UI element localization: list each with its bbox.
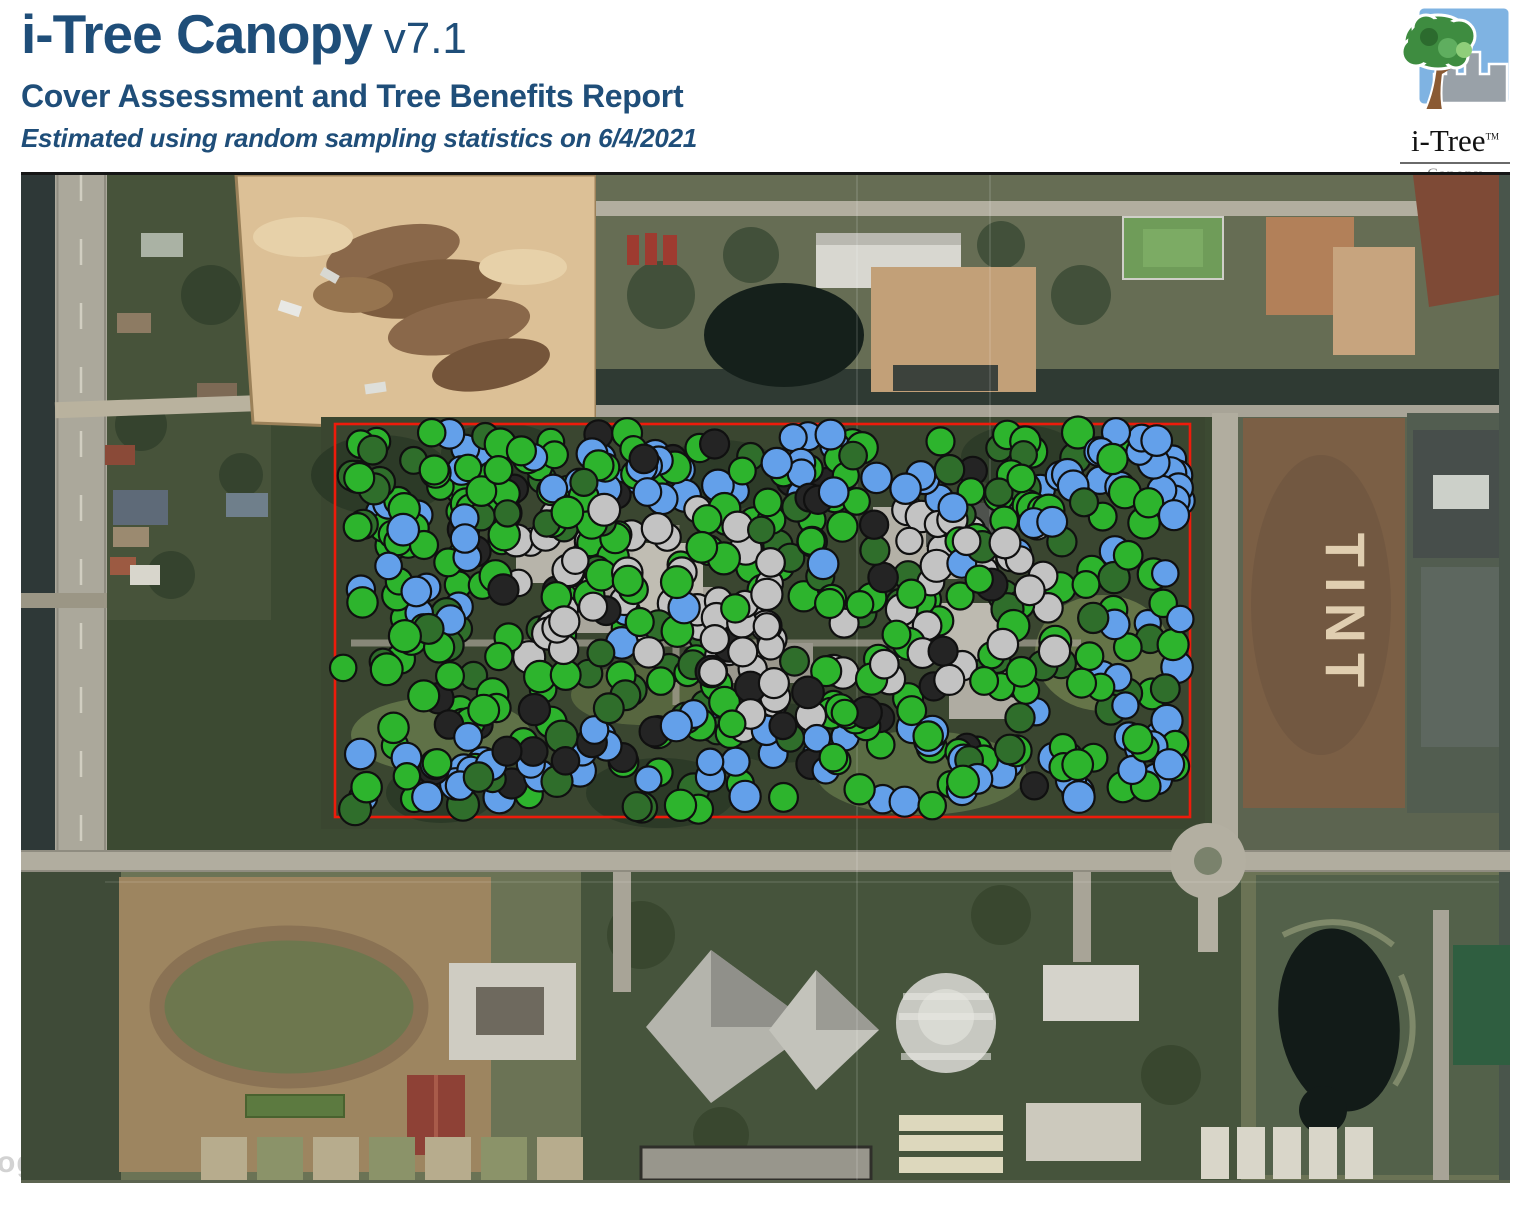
sample-point <box>860 536 889 565</box>
sample-point <box>995 735 1025 765</box>
sample-point <box>436 662 464 690</box>
sample-point <box>815 589 844 618</box>
sample-point <box>1114 541 1143 570</box>
sample-point <box>769 783 798 812</box>
sample-point <box>808 549 839 580</box>
sample-point <box>914 721 943 750</box>
sample-point <box>966 566 993 593</box>
sample-point <box>647 667 674 694</box>
sample-point <box>756 548 785 577</box>
page-title: i-Tree Canopyv7.1 <box>21 6 697 64</box>
sample-point <box>770 712 797 739</box>
sample-point <box>947 766 979 798</box>
sample-point <box>635 766 661 792</box>
sample-point <box>1007 657 1037 687</box>
sample-point <box>358 436 387 465</box>
sample-point <box>839 442 867 470</box>
sample-point <box>883 621 911 649</box>
sample-point <box>870 650 899 679</box>
sample-point <box>868 563 897 592</box>
sample-point <box>613 566 643 596</box>
sample-point <box>507 436 536 465</box>
sample-point <box>990 528 1021 559</box>
sample-point <box>970 667 998 695</box>
sample-point <box>759 668 789 698</box>
sample-point <box>701 625 729 653</box>
sample-point <box>754 613 780 639</box>
sample-point <box>762 448 792 478</box>
sample-point <box>552 497 584 529</box>
sample-point <box>1152 560 1178 586</box>
sample-point <box>927 427 955 455</box>
sample-point <box>1151 674 1180 703</box>
sample-point <box>729 458 756 485</box>
sample-point <box>344 513 372 541</box>
sample-point <box>1097 444 1127 474</box>
itree-canopy-logo: i-TreeTM Canopy <box>1396 4 1514 184</box>
sample-point <box>861 463 891 493</box>
logo-brand: i-TreeTM <box>1396 123 1514 159</box>
sample-point <box>464 762 493 791</box>
sample-point <box>897 580 925 608</box>
sample-point <box>847 591 874 618</box>
report-subtitle: Cover Assessment and Tree Benefits Repor… <box>21 78 697 115</box>
sample-point <box>748 517 774 543</box>
sample-point <box>890 787 920 817</box>
sample-point <box>579 593 607 621</box>
sample-point <box>934 665 964 695</box>
sample-point <box>454 723 482 751</box>
sample-point <box>351 772 381 802</box>
sample-point <box>570 469 597 496</box>
sample-point <box>661 566 693 598</box>
app-title: i-Tree Canopy <box>21 3 372 65</box>
sample-point <box>1158 629 1189 660</box>
sample-point <box>700 430 729 459</box>
sample-point <box>919 792 946 819</box>
sample-point <box>1078 603 1108 633</box>
sample-point <box>1037 507 1067 537</box>
sample-point <box>661 710 692 741</box>
sample-point <box>630 445 659 474</box>
sample-point <box>623 792 652 821</box>
sample-point <box>728 637 757 666</box>
sample-point <box>347 587 377 617</box>
sample-point <box>494 500 520 526</box>
sample-point <box>820 744 848 772</box>
sample-point <box>552 747 579 774</box>
sample-point <box>402 577 432 607</box>
report-note: Estimated using random sampling statisti… <box>21 123 697 154</box>
sample-point <box>754 489 782 517</box>
sample-point <box>845 774 875 804</box>
logo-brand-text: i-Tree <box>1411 123 1486 158</box>
sample-point <box>792 677 824 709</box>
sample-point <box>988 629 1019 660</box>
logo-divider <box>1400 162 1510 164</box>
sample-point <box>634 478 662 506</box>
sample-point <box>642 513 673 544</box>
version-label: v7.1 <box>384 14 467 63</box>
sample-point <box>721 594 749 622</box>
sample-point <box>1167 606 1193 632</box>
sample-point <box>780 424 807 451</box>
sample-point <box>468 695 499 726</box>
report-header: i-Tree Canopyv7.1 Cover Assessment and T… <box>21 6 697 154</box>
sample-point <box>1008 465 1036 493</box>
sample-point <box>485 643 512 670</box>
sample-point <box>827 512 857 542</box>
sample-point <box>1112 692 1138 718</box>
sample-point <box>378 713 408 743</box>
sample-point <box>1159 500 1189 530</box>
sample-point <box>488 574 518 604</box>
sample-point <box>1021 772 1048 799</box>
sample-point <box>1123 724 1152 753</box>
sample-point <box>1154 749 1184 779</box>
sample-point <box>1070 488 1098 516</box>
sample-point <box>588 494 620 526</box>
tint-ground-label: TINT <box>1314 533 1377 697</box>
sample-point <box>493 737 522 766</box>
sample-point <box>451 524 479 552</box>
sample-point <box>860 511 888 539</box>
sample-point <box>387 514 419 546</box>
sample-point <box>485 456 513 484</box>
sample-point <box>634 637 664 667</box>
sample-point <box>819 477 849 507</box>
sample-point <box>1067 669 1096 698</box>
sample-point <box>722 748 750 776</box>
sample-point <box>832 700 858 726</box>
sample-point <box>408 680 439 711</box>
sample-point <box>953 527 981 555</box>
sample-point <box>1076 642 1104 670</box>
sample-point <box>1039 636 1070 667</box>
sample-point <box>594 693 624 723</box>
sample-point <box>1063 781 1095 813</box>
sample-point <box>1073 571 1100 598</box>
sample-point <box>699 659 726 686</box>
sample-point <box>420 456 449 485</box>
sample-point <box>345 739 376 770</box>
sample-point <box>371 653 403 685</box>
sample-point <box>1015 575 1045 605</box>
sample-point <box>687 532 718 563</box>
satellite-image: TINT <box>21 175 1510 1180</box>
sample-point <box>816 420 846 450</box>
sample-point <box>751 579 782 610</box>
satellite-map: TINT <box>21 172 1510 1183</box>
sample-point <box>1141 425 1172 456</box>
sample-point <box>1062 749 1093 780</box>
sample-point <box>693 505 721 533</box>
sample-point <box>697 749 723 775</box>
sample-point <box>549 606 579 636</box>
sample-point <box>626 608 654 636</box>
sample-point <box>562 548 588 574</box>
logo-tm: TM <box>1486 132 1500 142</box>
sample-point <box>890 474 920 504</box>
sample-point <box>389 620 421 652</box>
sample-point <box>588 640 615 667</box>
logo-image <box>1396 4 1514 116</box>
sample-point <box>929 637 958 666</box>
sample-point <box>375 553 402 580</box>
sample-point <box>935 455 964 484</box>
sample-point <box>519 737 548 766</box>
sample-point <box>394 763 420 789</box>
sample-point <box>719 711 746 738</box>
sample-point <box>418 419 445 446</box>
sample-point <box>939 493 968 522</box>
sample-point <box>665 790 696 821</box>
sample-point <box>896 528 922 554</box>
sample-point <box>1005 703 1034 732</box>
sample-point <box>330 655 356 681</box>
sample-point <box>519 694 550 725</box>
sample-point <box>730 781 761 812</box>
sample-point <box>423 749 452 778</box>
sample-point <box>344 463 374 493</box>
